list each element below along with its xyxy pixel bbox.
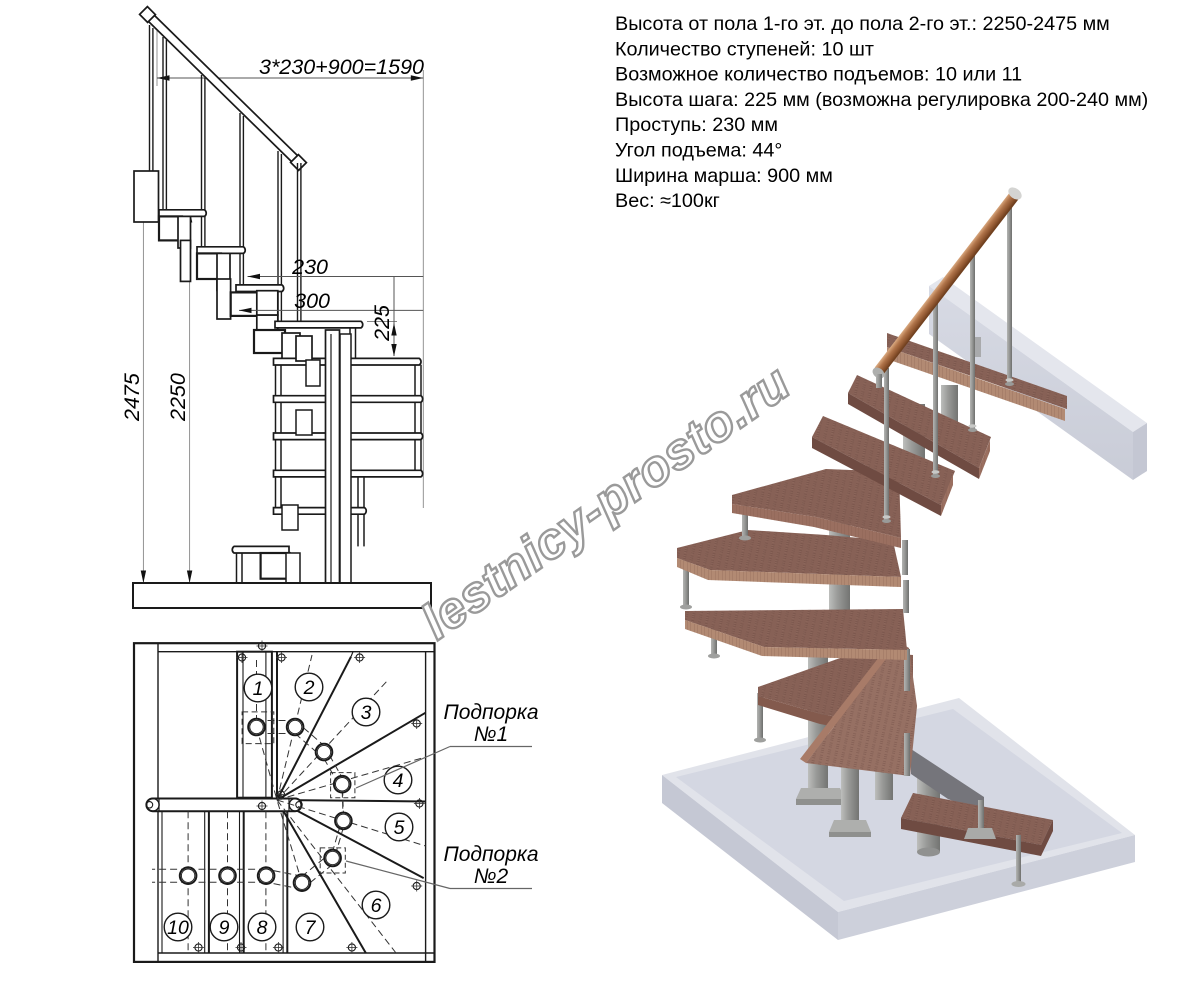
svg-text:10: 10 — [167, 917, 189, 939]
svg-text:300: 300 — [294, 289, 330, 313]
svg-text:225: 225 — [370, 304, 394, 342]
svg-text:№2: №2 — [474, 865, 509, 888]
svg-text:6: 6 — [371, 895, 382, 917]
svg-text:Количество ступеней: 10 шт: Количество ступеней: 10 шт — [615, 38, 874, 60]
svg-text:5: 5 — [394, 817, 405, 839]
svg-text:Высота от пола 1-го эт. до пол: Высота от пола 1-го эт. до пола 2-го эт.… — [615, 13, 1110, 35]
svg-text:230: 230 — [291, 255, 328, 279]
svg-text:4: 4 — [393, 770, 404, 792]
svg-text:Подпорка: Подпорка — [443, 843, 538, 866]
svg-text:7: 7 — [305, 917, 317, 939]
svg-text:1: 1 — [253, 678, 264, 700]
svg-text:3*230+900=1590: 3*230+900=1590 — [259, 55, 424, 79]
svg-text:Ширина марша: 900 мм: Ширина марша: 900 мм — [615, 165, 833, 187]
svg-text:Возможное количество подъемов:: Возможное количество подъемов: 10 или 11 — [615, 64, 1022, 86]
svg-text:№1: №1 — [474, 723, 508, 746]
svg-text:2: 2 — [303, 677, 315, 699]
svg-text:8: 8 — [257, 917, 268, 939]
svg-text:3: 3 — [361, 702, 372, 724]
svg-text:9: 9 — [219, 917, 230, 939]
svg-text:Вес: ≈100кг: Вес: ≈100кг — [615, 190, 720, 212]
svg-text:Высота шага: 225 мм (возможна: Высота шага: 225 мм (возможна регулировк… — [615, 89, 1148, 111]
svg-text:Проступь: 230 мм: Проступь: 230 мм — [615, 114, 778, 136]
svg-text:2250: 2250 — [166, 373, 190, 422]
svg-text:Угол подъема: 44°: Угол подъема: 44° — [615, 140, 782, 162]
svg-text:Подпорка: Подпорка — [443, 701, 538, 724]
svg-text:2475: 2475 — [120, 372, 144, 422]
